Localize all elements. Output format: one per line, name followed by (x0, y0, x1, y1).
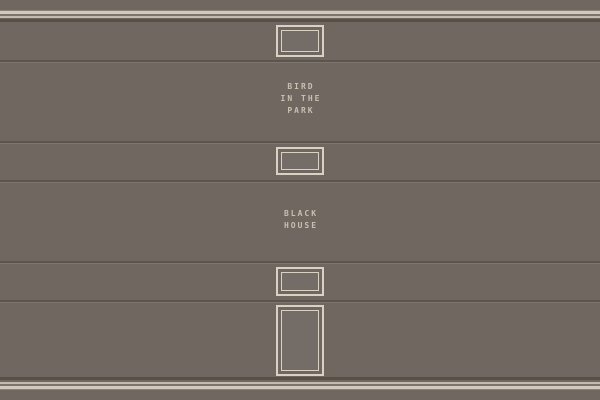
title-line-2: HOUSE (0, 220, 600, 232)
window-frame-3-inner (281, 272, 319, 291)
panel-groove-4-light (0, 263, 600, 264)
bottom-trim-light-line (0, 389, 600, 390)
window-frame-2 (276, 147, 324, 175)
title-line-3: PARK (0, 105, 600, 117)
top-trim-dark-line (0, 19, 600, 22)
title-line-1: BIRD (0, 81, 600, 93)
title-line-2: IN THE (0, 93, 600, 105)
door-frame-inner (281, 310, 319, 371)
title-bird-in-the-park: BIRD IN THE PARK (0, 81, 600, 117)
window-frame-1 (276, 25, 324, 57)
bottom-trim-dark-line (0, 377, 600, 380)
window-frame-2-inner (281, 152, 319, 170)
panel-groove-3-light (0, 182, 600, 183)
door-frame (276, 305, 324, 376)
window-frame-1-inner (281, 30, 319, 52)
panel-groove-1-light (0, 62, 600, 63)
panel-groove-5-light (0, 302, 600, 303)
title-line-1: BLACK (0, 208, 600, 220)
title-black-house: BLACK HOUSE (0, 208, 600, 232)
top-trim-cream-line-2 (0, 16, 600, 18)
paneled-door-wall: BIRD IN THE PARK BLACK HOUSE (0, 0, 600, 400)
window-frame-3 (276, 267, 324, 296)
panel-groove-2-light (0, 143, 600, 144)
